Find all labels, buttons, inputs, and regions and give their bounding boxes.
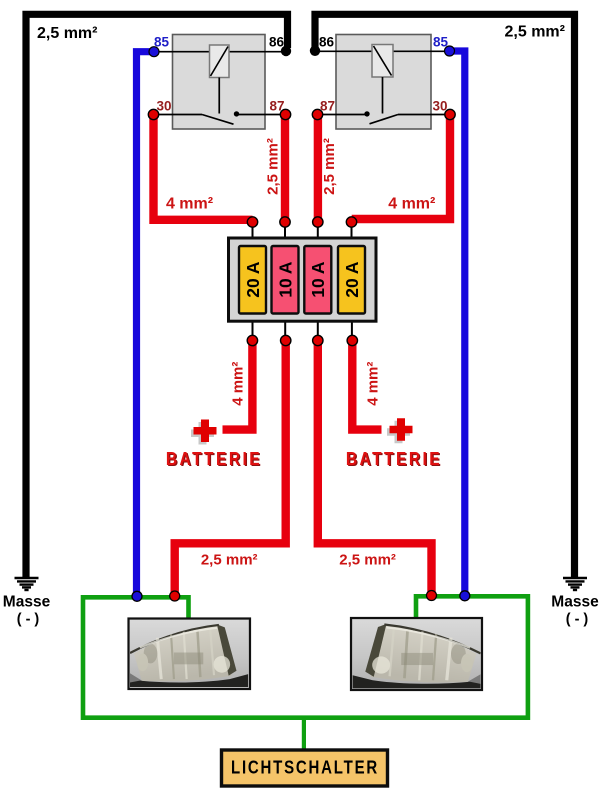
svg-text:30: 30: [432, 99, 447, 114]
svg-text:BATTERIE: BATTERIE: [346, 448, 442, 470]
svg-text:2,5 mm²: 2,5 mm²: [37, 25, 97, 42]
svg-text:2,5 mm²: 2,5 mm²: [264, 138, 281, 195]
svg-text:( - ): ( - ): [566, 612, 589, 628]
svg-text:4 mm²: 4 mm²: [230, 362, 247, 406]
svg-text:10 A: 10 A: [275, 261, 295, 298]
svg-text:4 mm²: 4 mm²: [166, 196, 213, 213]
svg-text:( - ): ( - ): [17, 612, 40, 628]
svg-text:20 A: 20 A: [342, 261, 362, 298]
svg-text:86: 86: [269, 35, 285, 50]
svg-text:2,5 mm²: 2,5 mm²: [505, 24, 565, 41]
svg-text:LICHTSCHALTER: LICHTSCHALTER: [231, 757, 379, 778]
svg-text:85: 85: [433, 35, 449, 50]
svg-text:86: 86: [319, 35, 335, 50]
svg-text:85: 85: [154, 35, 170, 50]
svg-text:2,5 mm²: 2,5 mm²: [339, 552, 396, 569]
svg-text:20 A: 20 A: [243, 261, 263, 298]
svg-text:87: 87: [320, 99, 335, 114]
svg-text:10 A: 10 A: [308, 261, 328, 298]
svg-text:87: 87: [270, 99, 285, 114]
svg-text:4 mm²: 4 mm²: [365, 362, 382, 406]
svg-text:BATTERIE: BATTERIE: [166, 448, 262, 470]
svg-text:2,5 mm²: 2,5 mm²: [321, 138, 338, 195]
svg-text:2,5 mm²: 2,5 mm²: [201, 552, 258, 569]
svg-text:4 mm²: 4 mm²: [388, 196, 435, 213]
svg-text:Masse: Masse: [551, 594, 599, 611]
svg-text:Masse: Masse: [3, 594, 51, 611]
svg-text:30: 30: [156, 99, 171, 114]
